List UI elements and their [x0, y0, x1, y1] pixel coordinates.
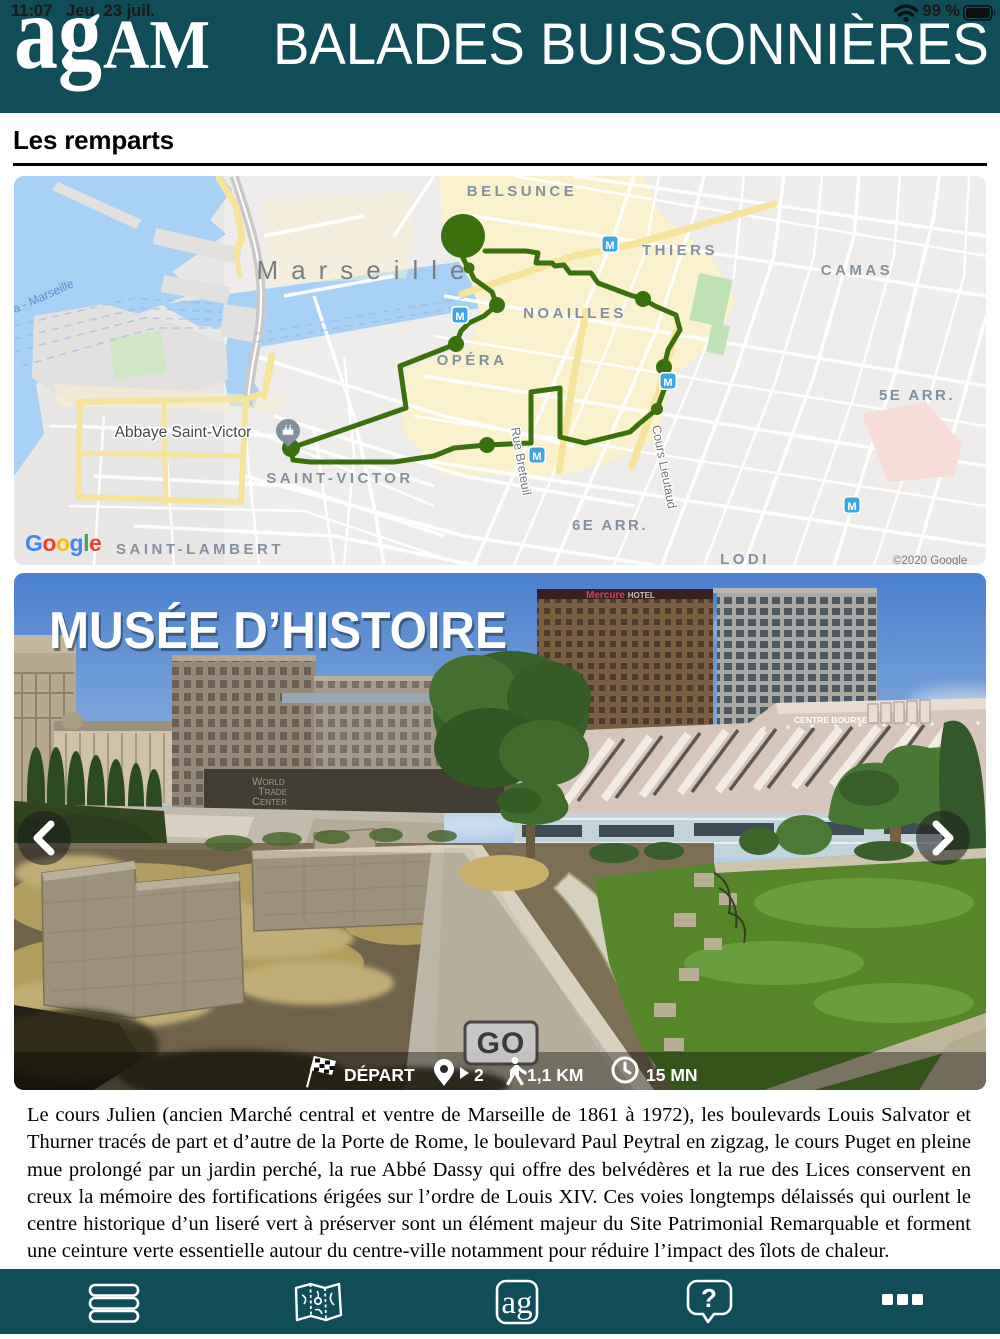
svg-text:SAINT-LAMBERT: SAINT-LAMBERT — [116, 541, 284, 558]
svg-text:2: 2 — [474, 1065, 484, 1085]
svg-text:CAMAS: CAMAS — [821, 262, 894, 279]
svg-text:TRADE: TRADE — [258, 786, 287, 798]
svg-text:?: ? — [701, 1283, 717, 1313]
svg-text:MUSÉE D’HISTOIRE: MUSÉE D’HISTOIRE — [49, 602, 507, 660]
svg-text:Marseille: Marseille — [256, 255, 477, 285]
svg-text:Abbaye Saint-Victor: Abbaye Saint-Victor — [115, 424, 252, 441]
svg-text:BELSUNCE: BELSUNCE — [467, 183, 578, 200]
svg-text:NOAILLES: NOAILLES — [523, 305, 627, 322]
svg-text:Google: Google — [25, 530, 101, 556]
svg-text:DÉPART: DÉPART — [344, 1064, 415, 1085]
svg-text:ag: ag — [501, 1285, 532, 1321]
svg-text:1,1 KM: 1,1 KM — [527, 1065, 583, 1085]
svg-text:15 MN: 15 MN — [646, 1065, 698, 1085]
svg-text:LODI: LODI — [720, 551, 770, 565]
svg-text:Mercure HOTEL: Mercure HOTEL — [586, 590, 655, 601]
svg-text:©2020 Google: ©2020 Google — [893, 555, 967, 565]
svg-text:CENTRE BOURSE: CENTRE BOURSE — [794, 715, 868, 725]
svg-text:OPÉRA: OPÉRA — [437, 352, 508, 369]
svg-text:GO: GO — [477, 1027, 526, 1060]
svg-text:WORLD: WORLD — [252, 776, 285, 788]
svg-text:THIERS: THIERS — [642, 242, 718, 259]
svg-text:ag: ag — [14, 0, 102, 91]
svg-text:CENTER: CENTER — [252, 796, 287, 808]
svg-text:5E ARR.: 5E ARR. — [879, 387, 955, 404]
svg-text:SAINT-VICTOR: SAINT-VICTOR — [266, 470, 414, 487]
svg-text:M: M — [455, 311, 464, 323]
svg-text:6E ARR.: 6E ARR. — [572, 517, 648, 534]
svg-text:AM: AM — [103, 7, 210, 84]
